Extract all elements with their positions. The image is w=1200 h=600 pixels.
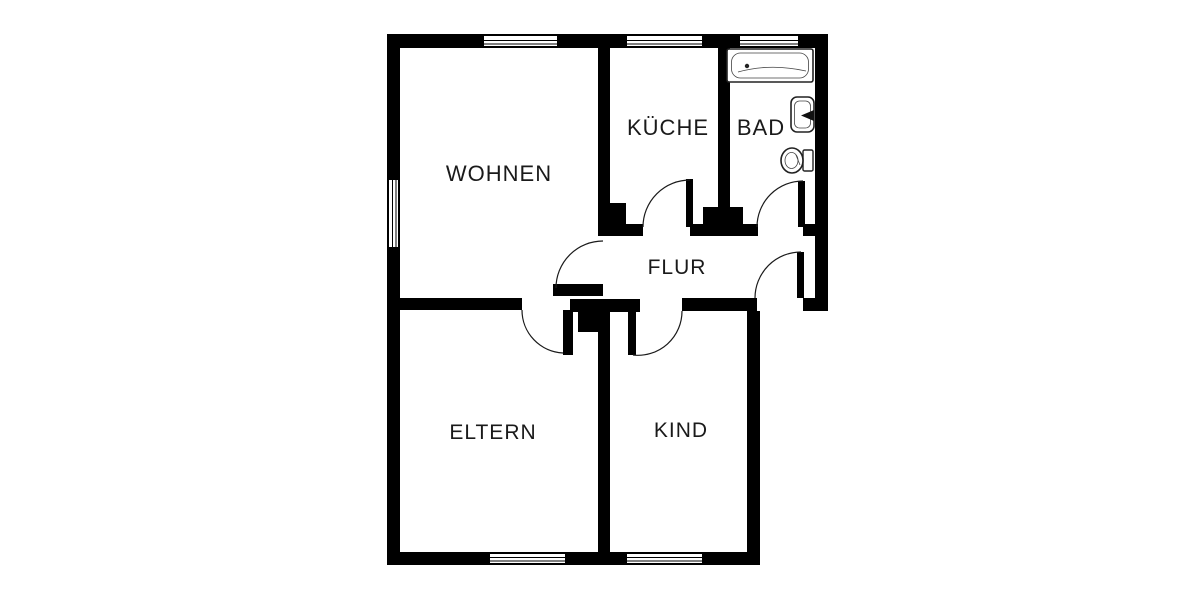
entry-door-arc [755, 252, 801, 298]
wall-entry-stub [803, 298, 828, 311]
room-label-eltern: ELTERN [449, 421, 536, 445]
window-kueche [627, 34, 702, 48]
bad-door [757, 181, 805, 227]
wall-top-3 [702, 34, 740, 48]
window-wohnen-left [387, 180, 400, 247]
window-kind [627, 552, 702, 565]
room-label-wohnen: WOHNEN [446, 161, 552, 187]
kueche-door [643, 179, 693, 227]
wall-eltern-top [387, 298, 522, 310]
wall-top-1 [387, 34, 484, 48]
wall-kind-top [682, 298, 757, 311]
room-label-kueche: KÜCHE [627, 115, 709, 141]
kueche-door-arc [643, 180, 690, 227]
wall-wohnen-kueche-divider [598, 48, 610, 203]
floorplan-drawing [0, 0, 1200, 600]
toilet-icon [781, 148, 813, 173]
bad-door-leaf [798, 181, 805, 227]
entry-door-leaf [797, 252, 804, 298]
wall-bottom-3 [702, 552, 760, 565]
wall-right-upper [815, 34, 828, 311]
wall-right-lower [747, 311, 760, 565]
wall-bottom-1 [387, 552, 490, 565]
eltern-door-arc [522, 310, 563, 353]
wall-flur-top-3 [803, 224, 828, 236]
walls [387, 34, 828, 565]
kind-door-leaf [628, 312, 636, 355]
bathtub-icon [727, 49, 813, 82]
room-label-bad: BAD [737, 115, 785, 141]
wall-wohnen-kueche-foot [598, 203, 626, 236]
kueche-door-leaf [686, 179, 693, 227]
wohnen-door-arc [556, 241, 603, 288]
eltern-door-leaf [563, 310, 573, 355]
wall-top-2 [557, 34, 627, 48]
window-bad [740, 34, 798, 48]
window-wohnen-top [484, 34, 557, 48]
room-label-kind: KIND [654, 419, 708, 443]
entry-door [755, 252, 804, 298]
wall-eltern-kind-divider [598, 311, 610, 565]
sink-icon [791, 97, 814, 132]
kind-door [628, 311, 682, 355]
wohnen-door-leaf [553, 284, 603, 296]
floorplan-canvas: WOHNEN KÜCHE BAD FLUR ELTERN KIND [0, 0, 1200, 600]
window-eltern [490, 552, 565, 565]
wall-kueche-bad-foot [703, 207, 743, 236]
wall-bottom-2 [565, 552, 627, 565]
wall-left-upper [387, 34, 400, 180]
wohnen-door [553, 241, 603, 296]
bad-door-arc [757, 181, 803, 227]
kind-door-arc [633, 311, 682, 355]
room-label-flur: FLUR [648, 256, 707, 280]
wall-left-lower [387, 247, 400, 565]
fixtures [727, 49, 814, 173]
eltern-door [522, 310, 573, 355]
